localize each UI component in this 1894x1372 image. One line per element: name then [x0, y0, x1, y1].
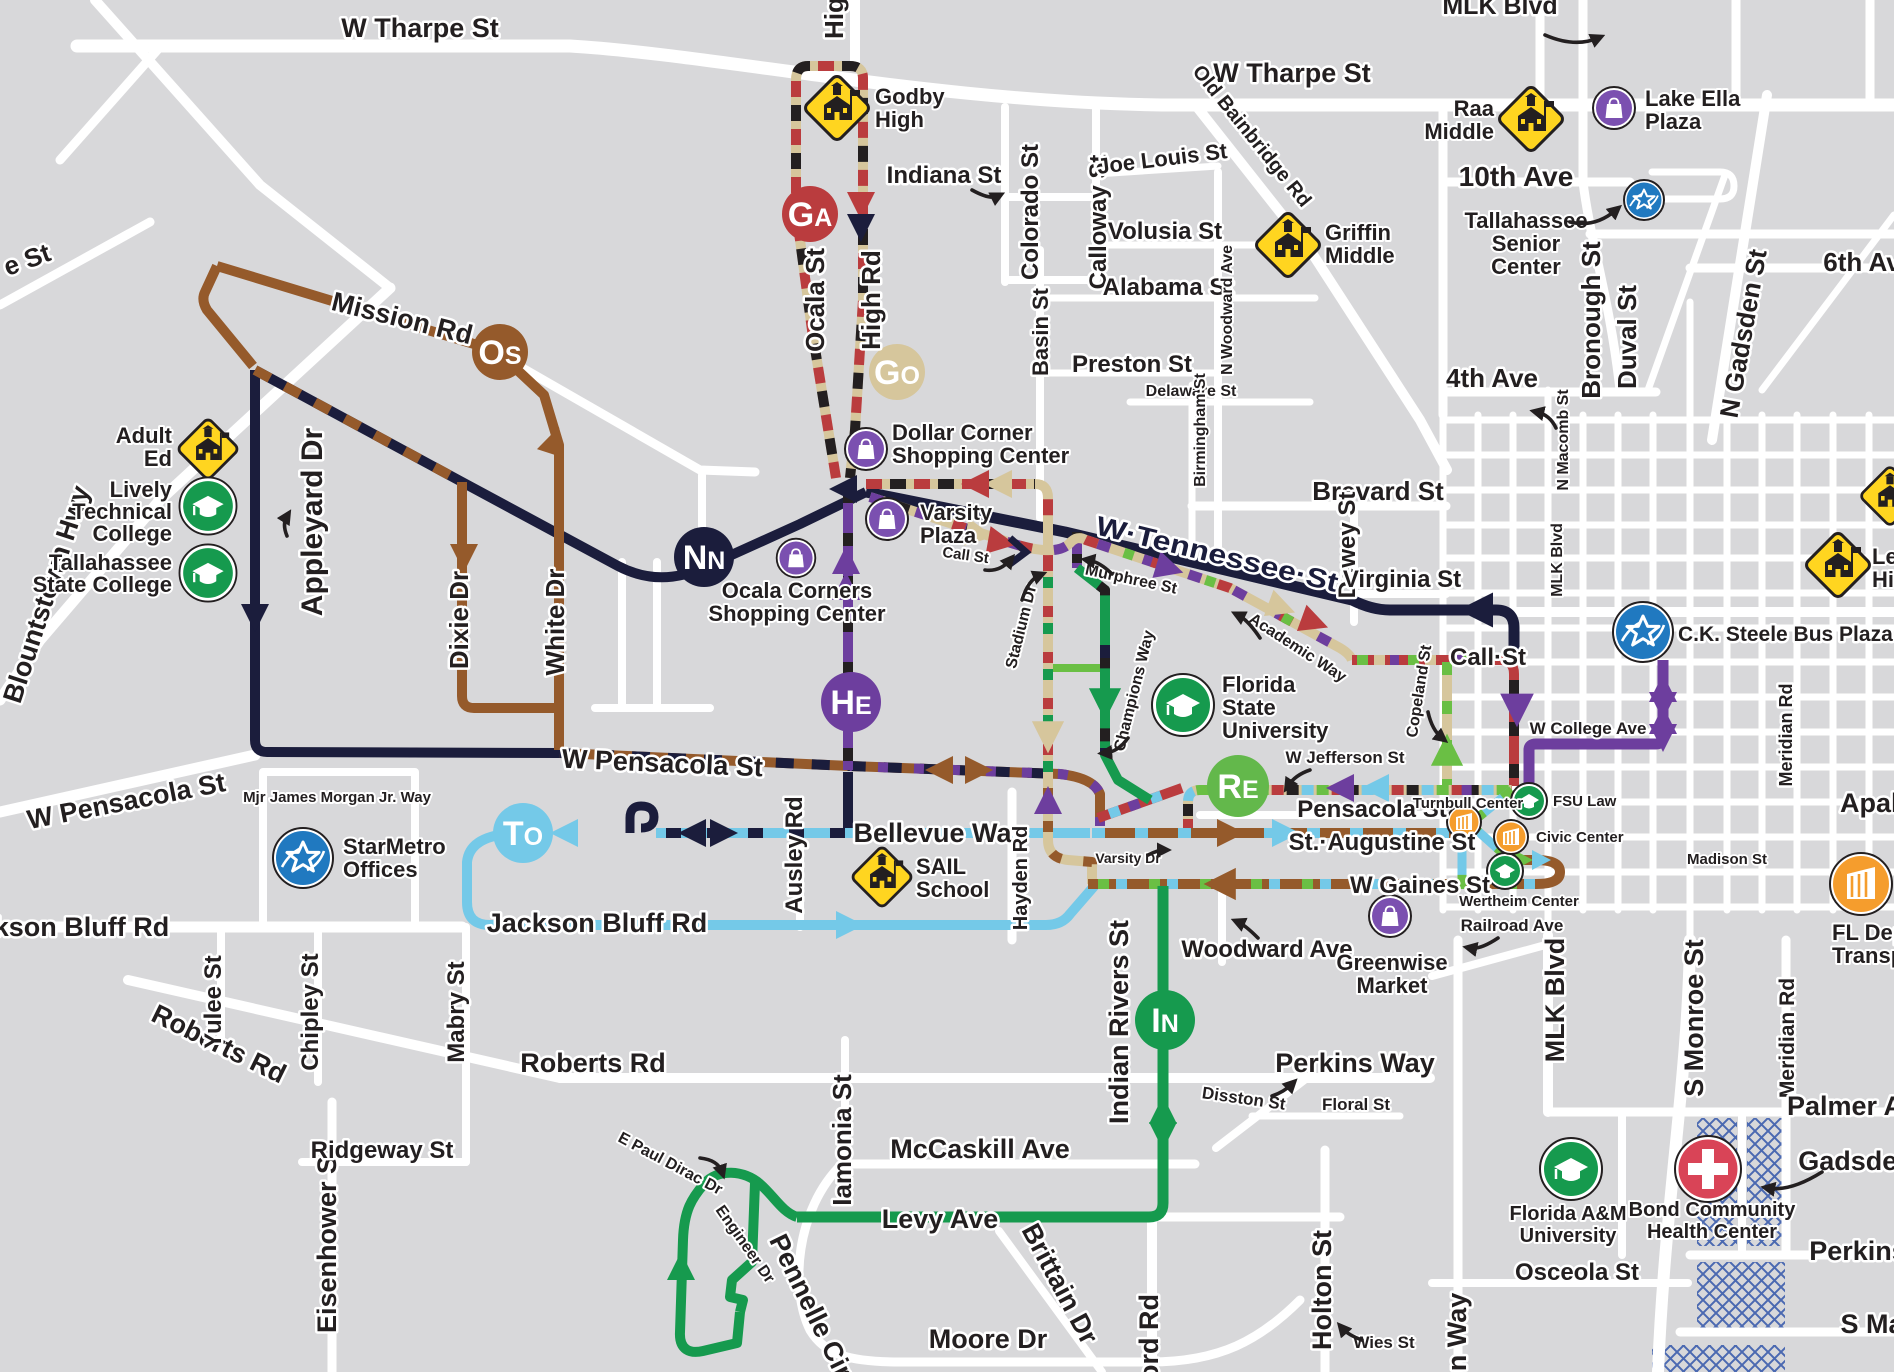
svg-text:Bronough St: Bronough St	[1576, 241, 1606, 399]
svg-text:Ausley Rd: Ausley Rd	[781, 796, 808, 913]
svg-text:Transpo: Transpo	[1832, 943, 1894, 968]
svg-text:Florida: Florida	[1222, 672, 1296, 697]
svg-text:Levy Ave: Levy Ave	[882, 1204, 999, 1234]
svg-text:N Macomb St: N Macomb St	[1555, 389, 1572, 491]
svg-text:Health Center: Health Center	[1647, 1221, 1777, 1243]
svg-text:McCaskill Ave: McCaskill Ave	[890, 1134, 1070, 1164]
svg-text:High: High	[875, 107, 924, 132]
svg-text:Hayden Rd: Hayden Rd	[1010, 826, 1032, 930]
svg-text:Ridgeway St: Ridgeway St	[311, 1137, 454, 1164]
svg-text:Roberts Rd: Roberts Rd	[520, 1048, 666, 1078]
svg-text:Greenwise: Greenwise	[1336, 950, 1447, 975]
svg-text:Center: Center	[1491, 254, 1561, 279]
svg-text:Florida A&M: Florida A&M	[1509, 1203, 1626, 1225]
svg-text:MLK Blvd: MLK Blvd	[1540, 938, 1570, 1063]
svg-text:W Jefferson St: W Jefferson St	[1285, 748, 1404, 767]
svg-text:Varsity: Varsity	[920, 500, 993, 525]
svg-text:ckson Bluff Rd: ckson Bluff Rd	[0, 912, 169, 942]
svg-text:Moore Dr: Moore Dr	[929, 1324, 1048, 1354]
svg-text:Basin St: Basin St	[1028, 287, 1053, 376]
svg-text:Mjr James Morgan Jr. Way: Mjr James Morgan Jr. Way	[243, 789, 432, 806]
svg-text:n Way: n Way	[1442, 1293, 1472, 1372]
svg-text:Eisenhower St: Eisenhower St	[312, 1147, 342, 1333]
svg-text:Preston St: Preston St	[1072, 351, 1192, 378]
svg-text:Dollar Corner: Dollar Corner	[892, 420, 1033, 445]
svg-text:Alabama St: Alabama St	[1103, 274, 1234, 301]
svg-text:ford Rd: ford Rd	[1134, 1294, 1164, 1372]
svg-text:Bellevue Way: Bellevue Way	[853, 818, 1026, 848]
svg-text:Meridian Rd: Meridian Rd	[1776, 683, 1796, 786]
svg-text:Middle: Middle	[1325, 243, 1395, 268]
svg-text:Volusia St: Volusia St	[1108, 218, 1222, 245]
svg-text:Shopping Center: Shopping Center	[892, 443, 1070, 468]
svg-text:MLK Blvd: MLK Blvd	[1549, 523, 1566, 597]
svg-text:Market: Market	[1357, 973, 1429, 998]
svg-text:Godby: Godby	[875, 84, 945, 109]
svg-text:Wies St: Wies St	[1353, 1333, 1415, 1352]
svg-text:StarMetro: StarMetro	[343, 834, 446, 859]
svg-text:Yulee St: Yulee St	[200, 955, 227, 1048]
svg-text:SAIL: SAIL	[916, 854, 966, 879]
svg-text:Birmingham St: Birmingham St	[1192, 372, 1209, 486]
svg-text:4th Ave: 4th Ave	[1446, 363, 1538, 393]
svg-text:Call·St: Call·St	[1450, 644, 1526, 671]
svg-text:Madison St: Madison St	[1687, 851, 1767, 868]
svg-text:Duval St: Duval St	[1612, 285, 1642, 389]
svg-text:Chipley St: Chipley St	[297, 953, 324, 1070]
svg-text:Perkins Way: Perkins Way	[1275, 1048, 1435, 1078]
svg-text:6th Av: 6th Av	[1823, 247, 1894, 277]
svg-text:White Dr: White Dr	[540, 569, 570, 676]
svg-text:Indian Rivers St: Indian Rivers St	[1104, 920, 1134, 1124]
svg-text:Holton St: Holton St	[1307, 1230, 1337, 1350]
svg-text:Civic Center: Civic Center	[1536, 829, 1624, 846]
svg-text:W Tharpe St: W Tharpe St	[341, 13, 499, 43]
svg-text:FL Dept: FL Dept	[1832, 920, 1894, 945]
svg-text:Plaza: Plaza	[1645, 109, 1702, 134]
svg-text:Apala: Apala	[1840, 788, 1894, 818]
svg-text:Plaza: Plaza	[920, 523, 977, 548]
svg-text:Appleyard Dr: Appleyard Dr	[296, 427, 329, 616]
svg-text:Brevard St: Brevard St	[1312, 476, 1444, 506]
svg-text:N Woodward Ave: N Woodward Ave	[1219, 245, 1236, 375]
svg-text:Osceola St: Osceola St	[1515, 1259, 1639, 1286]
svg-text:Meridian Rd: Meridian Rd	[1776, 978, 1799, 1098]
svg-text:Floral St: Floral St	[1322, 1095, 1390, 1114]
svg-text:Senior: Senior	[1492, 231, 1561, 256]
svg-text:Raa: Raa	[1454, 96, 1495, 121]
svg-text:Middle: Middle	[1424, 119, 1494, 144]
svg-text:Shopping Center: Shopping Center	[708, 601, 886, 626]
svg-text:Ocala Corners: Ocala Corners	[722, 578, 872, 603]
svg-text:C.K. Steele Bus Plaza: C.K. Steele Bus Plaza	[1678, 623, 1893, 646]
svg-text:High: High	[1872, 567, 1894, 592]
svg-text:Palmer Av: Palmer Av	[1787, 1091, 1894, 1121]
svg-text:10th Ave: 10th Ave	[1459, 161, 1574, 192]
svg-text:Offices: Offices	[343, 857, 418, 882]
svg-text:Mabry St: Mabry St	[443, 961, 470, 1062]
svg-text:Hig: Hig	[819, 0, 849, 39]
svg-text:Indiana St: Indiana St	[887, 162, 1002, 189]
svg-text:W Tharpe St: W Tharpe St	[1213, 58, 1371, 88]
svg-text:Turnbull Center: Turnbull Center	[1413, 795, 1524, 812]
svg-text:Dixie Dr: Dixie Dr	[444, 571, 474, 669]
svg-text:W College Ave: W College Ave	[1530, 719, 1647, 738]
svg-text:Ocala St: Ocala St	[800, 248, 830, 352]
svg-text:University: University	[1222, 718, 1329, 743]
svg-text:Woodward Ave: Woodward Ave	[1181, 936, 1352, 963]
svg-text:Griffin: Griffin	[1325, 220, 1391, 245]
svg-text:S Ma: S Ma	[1840, 1309, 1894, 1339]
svg-text:S Monroe St: S Monroe St	[1679, 939, 1709, 1097]
svg-text:St.·Augustine St: St.·Augustine St	[1289, 829, 1476, 856]
svg-text:Leon: Leon	[1872, 544, 1894, 569]
svg-text:Perkins: Perkins	[1809, 1236, 1894, 1266]
svg-text:Virginia St: Virginia St	[1343, 566, 1461, 593]
svg-text:Lake Ella: Lake Ella	[1645, 86, 1741, 111]
svg-text:High Rd: High Rd	[856, 250, 886, 350]
svg-text:Jackson Bluff Rd: Jackson Bluff Rd	[487, 908, 708, 938]
svg-text:Wertheim Center: Wertheim Center	[1459, 893, 1579, 910]
svg-text:Bond Community: Bond Community	[1629, 1199, 1797, 1221]
svg-text:MLK Blvd: MLK Blvd	[1442, 0, 1557, 20]
svg-text:Colorado St: Colorado St	[1017, 144, 1044, 280]
svg-text:Adult: Adult	[116, 423, 173, 448]
svg-text:Iamonia St: Iamonia St	[827, 1074, 857, 1206]
svg-text:State College: State College	[33, 572, 172, 597]
svg-text:FSU Law: FSU Law	[1553, 793, 1617, 810]
svg-text:University: University	[1520, 1225, 1618, 1247]
svg-text:Ed: Ed	[144, 446, 172, 471]
svg-text:State: State	[1222, 695, 1276, 720]
svg-text:Railroad Ave: Railroad Ave	[1461, 916, 1564, 935]
svg-text:Gadsden: Gadsden	[1798, 1146, 1894, 1176]
svg-text:College: College	[93, 521, 172, 546]
svg-text:School: School	[916, 877, 989, 902]
